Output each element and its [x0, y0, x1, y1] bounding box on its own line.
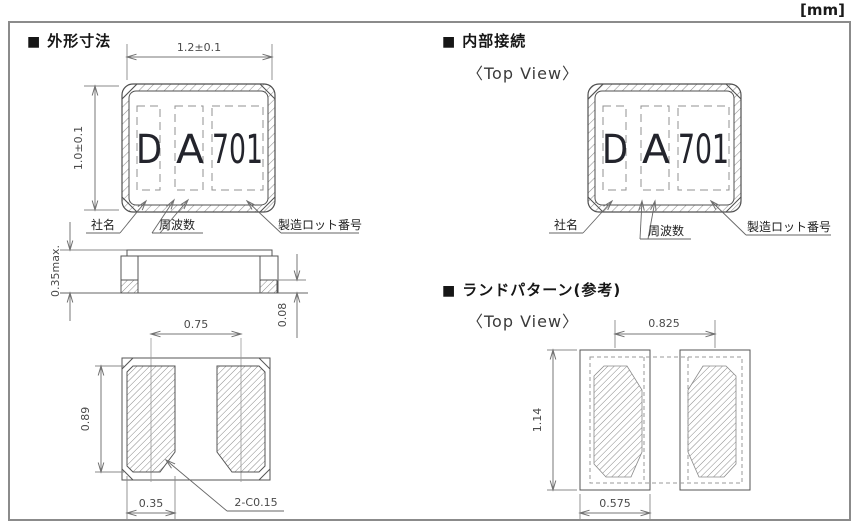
label-lot: 製造ロット番号	[278, 218, 362, 232]
label-frequency: 周波数	[159, 217, 195, 232]
marking-frequency-code: A	[642, 127, 671, 173]
terminal-pad-right	[217, 366, 265, 472]
dim-thickness: 0.35max.	[49, 245, 62, 297]
marking-company-code: D	[136, 127, 162, 173]
dim-chamfer: 2-C0.15	[234, 496, 277, 509]
marking-lot-code: 701	[678, 127, 729, 173]
technical-drawing-canvas: D A 701 1.2±0.1 1.0±0.1 社名 周波数 製造ロット番号	[0, 0, 861, 531]
terminal-footprint-left	[594, 366, 642, 477]
dim-pad-pitch: 0.75	[184, 318, 209, 331]
label-company: 社名	[91, 217, 115, 232]
terminal-footprint-right	[688, 366, 736, 477]
dim-electrode-height: 0.08	[276, 303, 289, 328]
outline-top-view-drawing: D A 701 1.2±0.1 1.0±0.1 社名 周波数 製造ロット番号	[72, 41, 362, 233]
label-company: 社名	[554, 217, 578, 232]
dim-pad-width: 0.35	[139, 497, 164, 510]
marking-frequency-code: A	[176, 127, 205, 173]
dim-land-height: 1.14	[531, 408, 544, 433]
dim-body-width: 1.2±0.1	[177, 41, 221, 54]
land-pattern-drawing: 0.825 1.14 0.575	[531, 317, 750, 519]
terminal-pad-left	[127, 366, 175, 472]
datasheet-page: [mm] ■外形寸法 ■内部接続 〈Top View〉 ■ランドパターン(参考)…	[0, 0, 861, 531]
label-lot: 製造ロット番号	[747, 220, 831, 234]
dim-land-pitch: 0.825	[648, 317, 680, 330]
dim-body-height: 1.0±0.1	[72, 126, 85, 170]
dim-land-width: 0.575	[599, 497, 631, 510]
dim-pad-length: 0.89	[79, 407, 92, 432]
marking-lot-code: 701	[212, 127, 263, 173]
outline-bottom-view-drawing: 0.75 0.89 0.35 2-C0.15	[79, 318, 284, 519]
outline-side-view-drawing: 0.35max. 0.08	[49, 222, 308, 338]
marking-company-code: D	[602, 127, 628, 173]
label-frequency: 周波数	[648, 223, 684, 238]
internal-connection-top-view-drawing: D A 701 社名 周波数 製造ロット番号	[549, 84, 831, 239]
